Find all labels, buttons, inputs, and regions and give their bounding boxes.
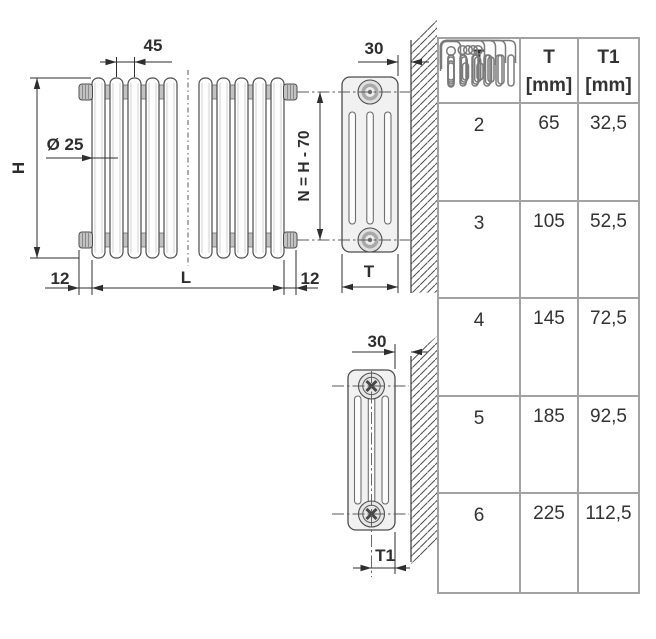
table-row-type-3: 3 (439, 202, 521, 300)
dim-label-30-top: 30 (365, 39, 384, 58)
t-value: 225 (521, 494, 579, 592)
t1-value: 32,5 (579, 104, 638, 202)
dim-label-n: N = H - 70 (296, 130, 313, 201)
dim-label-t: T (364, 262, 375, 281)
header-t1-label: T1 (597, 44, 619, 72)
t1-value: 52,5 (579, 202, 638, 300)
column-count-label: 4 (474, 311, 485, 330)
radiator-spec-diagram: 45 H Ø 25 N = H - 70 12 L 12 30 T 30 T1 … (0, 0, 656, 639)
header-t-label: T (543, 44, 555, 72)
t1-value: 92,5 (579, 397, 638, 495)
column-count-label: 2 (474, 116, 485, 135)
spec-table: T T [mm] T1 [mm] 2 65 32,5 3 105 52,5 4 … (437, 37, 640, 594)
header-t1-unit: [mm] (585, 72, 631, 100)
dim-label-12-right: 12 (301, 269, 320, 288)
t1-value: 112,5 (579, 494, 638, 592)
t-value: 145 (521, 299, 579, 397)
table-row-type-4: 4 (439, 299, 521, 397)
table-header-t1: T1 [mm] (579, 39, 638, 104)
column-count-label: 3 (474, 214, 485, 233)
column-count-label: 6 (474, 506, 485, 525)
t1-value: 72,5 (579, 299, 638, 397)
dim-label-diameter: Ø 25 (47, 135, 84, 154)
table-row-type-2: 2 (439, 104, 521, 202)
t-value: 65 (521, 104, 579, 202)
dim-label-l: L (181, 268, 191, 287)
t-value: 105 (521, 202, 579, 300)
table-row-type-5: 5 (439, 397, 521, 495)
wall-bottom (411, 336, 437, 564)
side-slots (349, 112, 391, 224)
table-header-t: T [mm] (521, 39, 579, 104)
column-count-label: 5 (474, 409, 485, 428)
side-view-top (342, 77, 398, 252)
radiator-tubes (92, 78, 284, 258)
dim-label-45: 45 (144, 36, 163, 55)
table-row-type-6: 6 (439, 494, 521, 592)
front-view (79, 70, 297, 266)
t-value: 185 (521, 397, 579, 495)
dim-label-t1: T1 (375, 546, 395, 565)
header-t-unit: [mm] (526, 72, 572, 100)
dim-label-30-bottom: 30 (368, 332, 387, 351)
dim-label-h: H (9, 162, 28, 174)
dim-label-12-left: 12 (51, 269, 70, 288)
